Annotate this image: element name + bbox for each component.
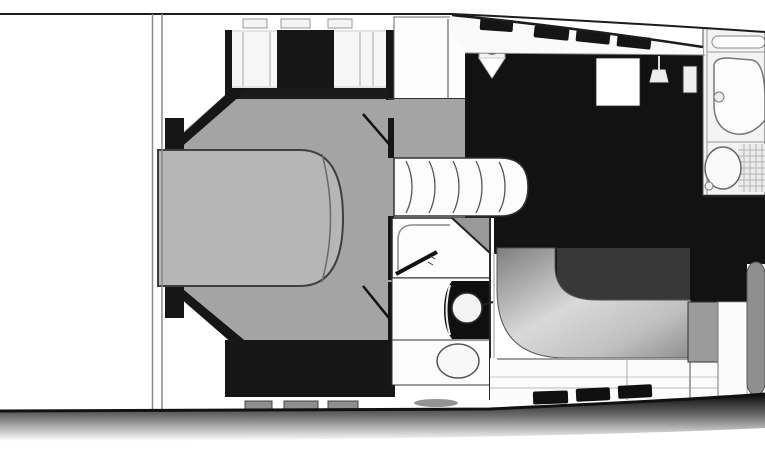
toilet-flush (705, 182, 713, 190)
deck-hatch (243, 19, 267, 28)
corner-locker-top (165, 118, 184, 150)
aft-head (703, 28, 765, 196)
basin-drain (714, 92, 724, 102)
yacht-floorplan-canvas (0, 0, 765, 450)
vanity-room (392, 278, 493, 340)
head-shelf-sink (712, 36, 765, 48)
aft-sole (705, 196, 747, 308)
galley-appliance (683, 66, 697, 93)
stair-landing-floor (394, 99, 466, 161)
hull-window (618, 384, 653, 399)
deck-hatch (281, 19, 310, 28)
wall-segment (388, 118, 394, 158)
toilet (437, 344, 479, 378)
stair-tread-field (394, 158, 528, 216)
aft-white-panel (718, 302, 747, 400)
aft-sole (747, 196, 765, 264)
wall-segment (388, 40, 394, 99)
master-bed (158, 150, 343, 286)
bow-deck-hatches (243, 19, 352, 28)
deck-hatch (328, 19, 352, 28)
hull-window (576, 387, 611, 402)
corner-locker-bottom (165, 285, 184, 318)
aft-cabinet-block (688, 302, 718, 362)
fixture-shade (650, 70, 668, 82)
wardrobe-band (225, 340, 395, 397)
aft-table-dark (557, 248, 690, 302)
cabinet-base-trim (225, 88, 395, 99)
floor-shadow (414, 399, 458, 407)
aft-round-locker (747, 262, 765, 395)
shower-stall (392, 218, 490, 278)
round-sink (452, 293, 482, 323)
cabinet-dark-unit (277, 30, 334, 88)
floorplan-drawing (0, 0, 765, 450)
galley-island-counter (596, 58, 640, 106)
companionway-stairs (394, 158, 528, 216)
hull-window (533, 390, 568, 404)
